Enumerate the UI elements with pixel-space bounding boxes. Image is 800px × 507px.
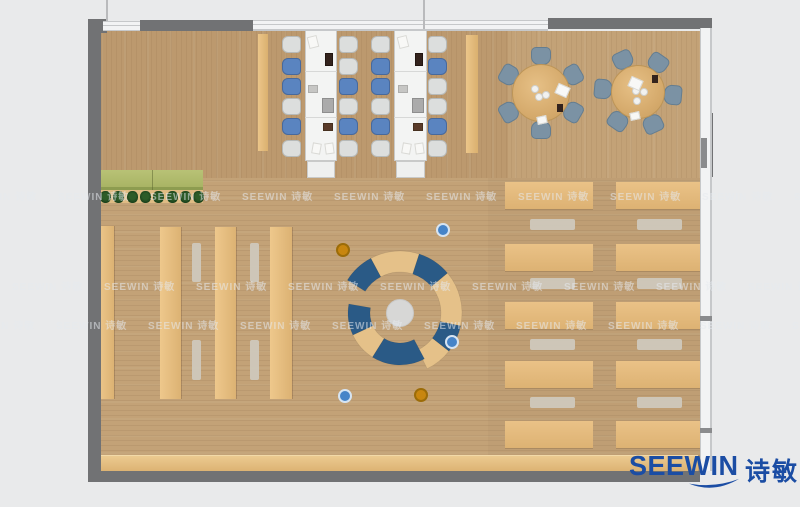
reading-desk <box>616 244 700 271</box>
floorplan-canvas: SEEWIN 诗敏 SEEWIN 诗敏SEEWIN 诗敏SEEWIN 诗敏SEE… <box>0 0 800 507</box>
reading-desk <box>505 244 593 271</box>
swoosh-icon <box>687 478 741 491</box>
office-chair <box>282 140 301 157</box>
desk-item-brown <box>413 123 423 131</box>
desk-item-paper <box>311 142 322 154</box>
table-item-dark <box>557 104 563 112</box>
office-chair <box>282 58 301 75</box>
bookshelf-column <box>215 227 236 399</box>
office-chair <box>339 118 358 135</box>
office-chair <box>282 118 301 135</box>
watermark: SEEWIN 诗敏 <box>148 317 219 332</box>
watermark: SEEWIN 诗敏 <box>334 188 405 203</box>
watermark: SEEWIN 诗敏 <box>700 317 771 332</box>
brand-wordmark-cn: 诗敏 <box>745 452 799 488</box>
desk-item-paper <box>401 142 412 154</box>
watermark: SEEWIN 诗敏 <box>702 188 773 203</box>
desk-item-dark <box>325 53 333 66</box>
watermark: SEEWIN 诗敏 <box>58 188 129 203</box>
window-top-gap <box>103 21 140 31</box>
reading-bench <box>637 219 682 230</box>
window-mullion <box>106 0 108 21</box>
desk-item-laptop <box>322 98 334 113</box>
watermark: SEEWIN 诗敏 <box>426 188 497 203</box>
watermark: SEEWIN 诗敏 <box>242 188 313 203</box>
desk-end-cabinet <box>307 161 335 178</box>
table-plate <box>640 88 648 96</box>
office-chair <box>371 98 390 115</box>
bookshelf-column <box>270 227 292 399</box>
office-chair <box>282 78 301 95</box>
office-chair <box>371 140 390 157</box>
watermark: SEEWIN 诗敏 <box>424 317 495 332</box>
watermark: SEEWIN 诗敏 <box>610 188 681 203</box>
watermark: SEEWIN 诗敏 <box>150 188 221 203</box>
watermark: SEEWIN 诗敏 <box>516 317 587 332</box>
watermark: SEEWIN 诗敏 <box>564 278 635 293</box>
reading-bench <box>530 339 575 350</box>
watermark: SEEWIN 诗敏 <box>332 317 403 332</box>
round-table-chair <box>531 47 551 65</box>
watermark: SEEWIN 诗敏 <box>380 278 451 293</box>
office-chair <box>339 58 358 75</box>
office-chair <box>428 58 447 75</box>
table-plate <box>542 91 550 99</box>
watermark: SEEWIN 诗敏 <box>794 188 800 203</box>
desk-divider <box>394 71 427 72</box>
watermark: SEEWIN 诗敏 <box>104 278 175 293</box>
pouf-blue <box>445 335 459 349</box>
office-chair <box>428 78 447 95</box>
reading-bench <box>637 339 682 350</box>
wall-tick <box>701 138 707 168</box>
office-chair <box>428 140 447 157</box>
office-chair <box>339 140 358 157</box>
reading-desk <box>505 361 593 388</box>
watermark: SEEWIN 诗敏 <box>792 317 800 332</box>
reading-bench <box>530 397 575 408</box>
desk-item-paper <box>324 142 334 154</box>
watermark: SEEWIN 诗敏 <box>748 278 800 293</box>
desk-end-cabinet <box>396 161 425 178</box>
watermark: SEEWIN 诗敏 <box>0 188 37 203</box>
table-item-dark <box>652 75 658 83</box>
window-right <box>700 28 712 471</box>
window-counter <box>100 455 698 471</box>
watermark: SEEWIN 诗敏 <box>608 317 679 332</box>
reading-desk <box>616 361 700 388</box>
table-plate <box>633 97 641 105</box>
watermark: SEEWIN 诗敏 <box>196 278 267 293</box>
office-chair <box>428 36 447 53</box>
desk-item-gray <box>398 85 408 93</box>
watermark: SEEWIN 诗敏 <box>240 317 311 332</box>
round-table-chair <box>663 84 683 105</box>
reading-desk <box>616 421 700 448</box>
watermark: SEEWIN 诗敏 <box>0 317 35 332</box>
desk-item-gray <box>308 85 318 93</box>
office-chair <box>282 36 301 53</box>
wall-left <box>88 22 101 482</box>
watermark: SEEWIN 诗敏 <box>518 188 589 203</box>
desk-divider <box>305 117 337 118</box>
aisle-bench <box>192 340 201 380</box>
pouf-orange <box>414 388 428 402</box>
desk-item-dark <box>415 53 423 66</box>
desk-divider <box>394 117 427 118</box>
window-top <box>253 20 548 31</box>
pouf-blue <box>338 389 352 403</box>
office-chair <box>339 98 358 115</box>
office-chair <box>428 118 447 135</box>
desk-item-paper <box>414 142 424 154</box>
office-chair <box>371 118 390 135</box>
office-chair <box>339 78 358 95</box>
table-plate <box>531 85 539 93</box>
reading-bench <box>637 397 682 408</box>
desk-divider <box>305 71 337 72</box>
watermark: SEEWIN 诗敏 <box>288 278 359 293</box>
office-chair <box>282 98 301 115</box>
office-chair <box>371 36 390 53</box>
side-bench-strip <box>258 34 268 151</box>
office-chair <box>371 78 390 95</box>
side-bench-strip <box>466 35 478 153</box>
brand-logo: SEEWIN 诗敏 <box>629 449 800 493</box>
watermark: SEEWIN 诗敏 <box>12 278 83 293</box>
bookshelf-column <box>160 227 181 399</box>
pouf-orange <box>336 243 350 257</box>
wall-bottom <box>88 471 700 482</box>
desk-item-brown <box>323 123 333 131</box>
office-chair <box>371 58 390 75</box>
aisle-bench <box>192 243 201 282</box>
wall-tick <box>700 428 712 433</box>
watermark: SEEWIN 诗敏 <box>56 317 127 332</box>
wall-top-beam <box>140 20 253 31</box>
watermark: SEEWIN 诗敏 <box>472 278 543 293</box>
desk-item-laptop <box>412 98 424 113</box>
watermark: SEEWIN 诗敏 <box>656 278 727 293</box>
reading-bench <box>530 219 575 230</box>
aisle-bench <box>250 340 259 380</box>
reading-desk <box>505 421 593 448</box>
pouf-blue <box>436 223 450 237</box>
aisle-bench <box>250 243 259 282</box>
window-mullion <box>423 0 425 29</box>
wall-top-right-beam <box>548 18 712 29</box>
office-chair <box>428 98 447 115</box>
office-chair <box>339 36 358 53</box>
